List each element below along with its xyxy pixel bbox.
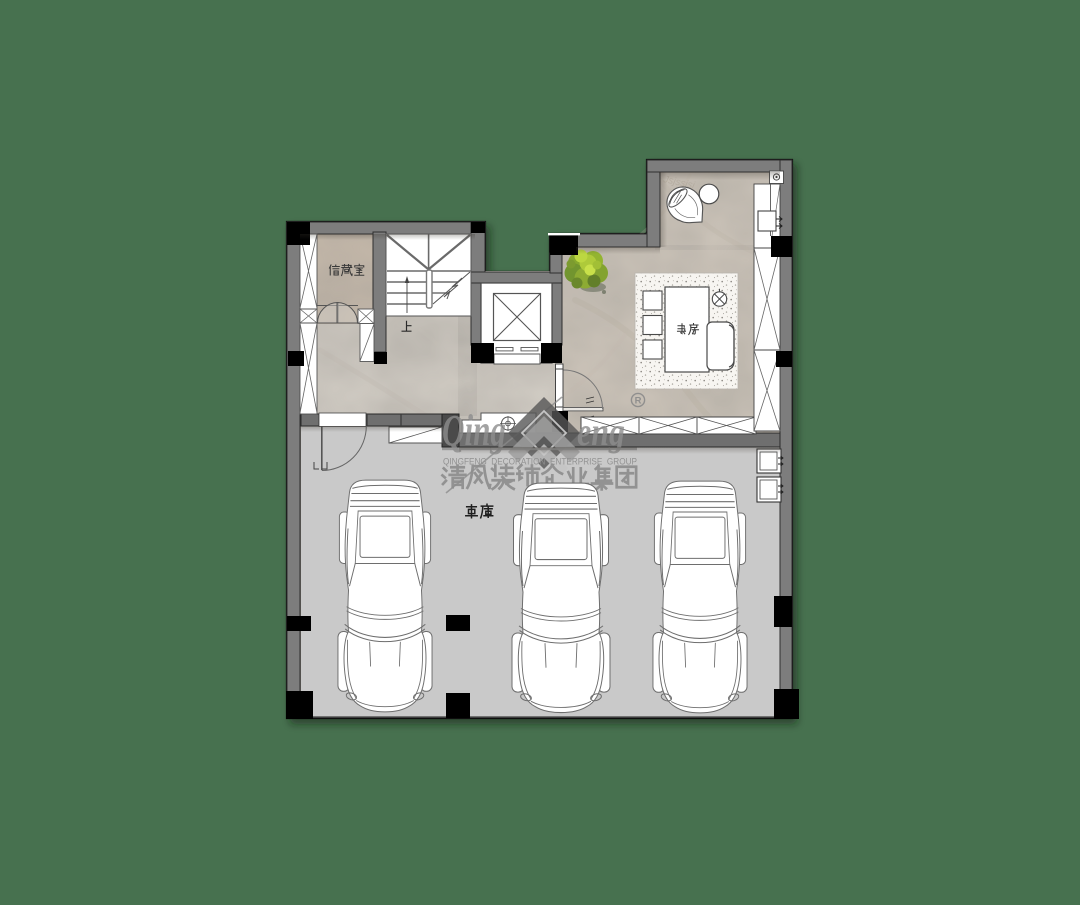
svg-text:R: R xyxy=(635,396,642,407)
